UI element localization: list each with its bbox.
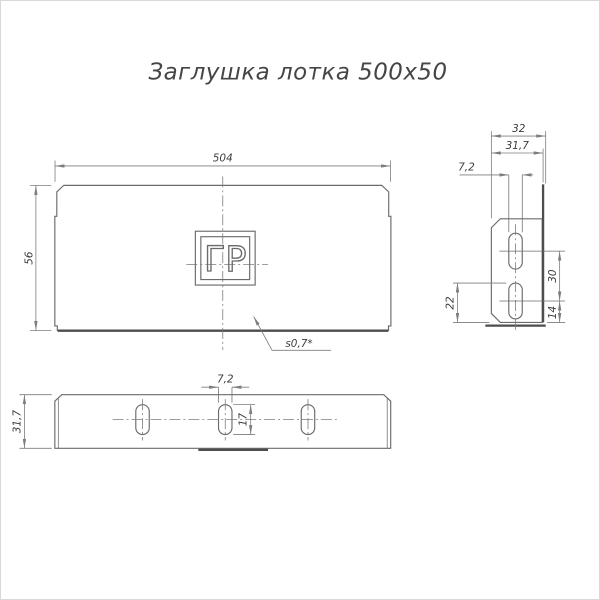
dim-side-slot-width-label: 7,2: [458, 161, 475, 173]
drawing-title: Заглушка лотка 500х50: [148, 60, 447, 86]
dim-side-depth-overall: 32: [491, 123, 545, 218]
dim-bottom-flange-depth-label: 31,7: [11, 410, 23, 434]
side-outline: [491, 219, 542, 323]
brand-logo: ГР: [195, 231, 255, 285]
dim-side-slot-bottom-offset: 14: [547, 301, 565, 322]
dim-bottom-slot-width: 7,2: [201, 374, 249, 403]
dim-side-slot-bottom-offset-label: 14: [547, 306, 559, 319]
bottom-outline: [55, 395, 391, 449]
bottom-view: 7,2 17 31,7: [11, 374, 390, 450]
dim-side-slot-edge: 22: [444, 283, 506, 322]
thickness-leader: s0,7*: [254, 316, 331, 350]
logo-letters: ГР: [204, 240, 246, 280]
dim-bottom-slot-width-label: 7,2: [217, 374, 234, 386]
dim-side-slot-spacing-label: 30: [547, 269, 559, 283]
dim-side-slot-edge-label: 22: [444, 296, 456, 309]
dim-side-depth-inner: 31,7: [491, 140, 543, 182]
thickness-note-label: s0,7*: [285, 338, 312, 350]
dim-front-height: 56: [23, 185, 51, 330]
dim-side-depth-overall-label: 32: [512, 123, 525, 135]
drawing-svg: Заглушка лотка 500х50 ГР s0,7* 504: [1, 1, 599, 599]
dim-bottom-flange-depth: 31,7: [11, 395, 51, 449]
dim-side-slot-spacing: 30: [547, 251, 559, 301]
side-view: 32 31,7 7,2 30 14: [444, 123, 565, 333]
dim-side-depth-inner-label: 31,7: [506, 140, 530, 152]
dim-side-slot-width: 7,2: [458, 161, 533, 232]
dim-front-width-label: 504: [213, 152, 233, 164]
technical-drawing: Заглушка лотка 500х50 ГР s0,7* 504: [0, 0, 600, 600]
dim-bottom-slot-length-label: 17: [238, 413, 250, 427]
dim-front-height-label: 56: [23, 251, 35, 265]
front-view: ГР s0,7* 504 56: [23, 152, 391, 350]
